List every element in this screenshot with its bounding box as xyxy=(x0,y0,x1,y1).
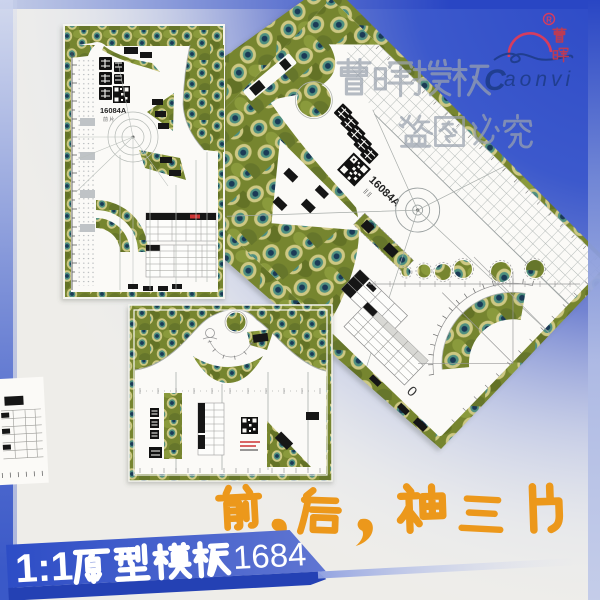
svg-text:aonvi: aonvi xyxy=(504,68,574,91)
svg-text:R: R xyxy=(546,16,552,25)
svg-text:1:1: 1:1 xyxy=(14,544,74,591)
svg-text:1684: 1684 xyxy=(232,535,307,576)
svg-text:16084A: 16084A xyxy=(100,106,127,115)
